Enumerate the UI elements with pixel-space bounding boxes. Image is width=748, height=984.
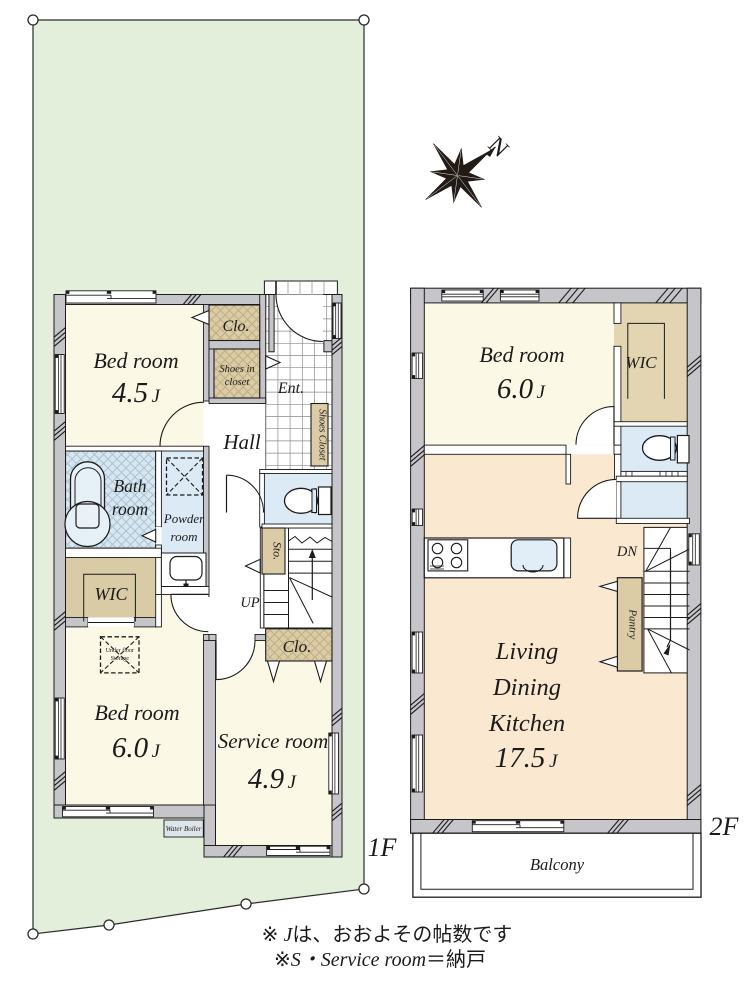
svg-text:Water Boiler: Water Boiler	[166, 825, 202, 833]
svg-text:6.0: 6.0	[112, 732, 149, 764]
svg-text:Kitchen: Kitchen	[488, 710, 565, 737]
svg-text:※ Jは、おおよその帖数です: ※ Jは、おおよその帖数です	[262, 923, 513, 946]
svg-text:2F: 2F	[710, 812, 740, 841]
svg-text:Living: Living	[495, 638, 559, 665]
svg-text:room: room	[171, 529, 198, 544]
svg-text:Bed room: Bed room	[93, 348, 178, 373]
svg-text:Balcony: Balcony	[530, 855, 585, 874]
svg-text:Bed room: Bed room	[94, 700, 179, 725]
svg-text:Storage: Storage	[111, 656, 130, 662]
svg-text:closet: closet	[225, 377, 251, 388]
svg-text:WIC: WIC	[95, 584, 129, 604]
svg-text:Clo.: Clo.	[283, 637, 312, 656]
svg-text:※S・Service room＝納戸: ※S・Service room＝納戸	[274, 948, 486, 971]
svg-text:Dining: Dining	[492, 674, 561, 701]
svg-text:Bed room: Bed room	[479, 342, 564, 367]
svg-text:UP: UP	[240, 595, 259, 611]
svg-text:6.0: 6.0	[497, 373, 534, 405]
svg-text:room: room	[112, 499, 148, 519]
svg-text:4.5: 4.5	[112, 377, 148, 409]
svg-text:Bath: Bath	[113, 476, 146, 496]
svg-text:WIC: WIC	[625, 353, 657, 372]
svg-text:Shoes in: Shoes in	[219, 364, 254, 375]
svg-text:17.5: 17.5	[495, 742, 546, 774]
svg-text:Pantry: Pantry	[627, 608, 639, 639]
svg-text:Shoes Closet: Shoes Closet	[317, 409, 328, 461]
svg-text:Under floor: Under floor	[106, 647, 134, 654]
svg-text:DN: DN	[616, 544, 638, 560]
svg-text:Hall: Hall	[222, 430, 261, 454]
svg-text:Ent.: Ent.	[277, 380, 304, 397]
svg-text:Sto.: Sto.	[271, 542, 285, 560]
svg-text:Powder: Powder	[163, 511, 205, 526]
svg-text:1F: 1F	[368, 833, 398, 862]
svg-text:4.9: 4.9	[248, 763, 285, 795]
svg-text:Clo.: Clo.	[222, 318, 249, 335]
svg-text:Service room: Service room	[218, 729, 329, 753]
